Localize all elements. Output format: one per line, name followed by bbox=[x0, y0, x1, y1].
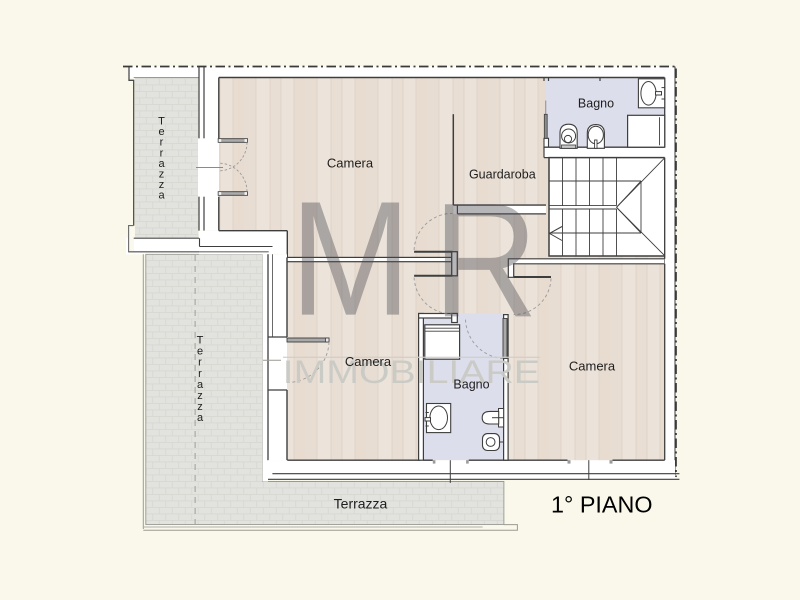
svg-text:Camera: Camera bbox=[569, 359, 616, 374]
svg-text:R: R bbox=[433, 168, 538, 351]
svg-text:1° PIANO: 1° PIANO bbox=[551, 492, 653, 518]
svg-text:a: a bbox=[197, 412, 204, 424]
svg-text:Bagno: Bagno bbox=[578, 97, 614, 111]
svg-text:a: a bbox=[158, 190, 165, 202]
svg-text:IMMOBILIARE: IMMOBILIARE bbox=[283, 354, 540, 390]
svg-text:Bagno: Bagno bbox=[453, 378, 489, 392]
svg-text:Camera: Camera bbox=[345, 354, 392, 369]
svg-text:Guardaroba: Guardaroba bbox=[469, 168, 536, 182]
svg-text:Camera: Camera bbox=[327, 156, 374, 171]
svg-text:Terrazza: Terrazza bbox=[334, 496, 388, 512]
svg-text:M: M bbox=[290, 167, 411, 350]
